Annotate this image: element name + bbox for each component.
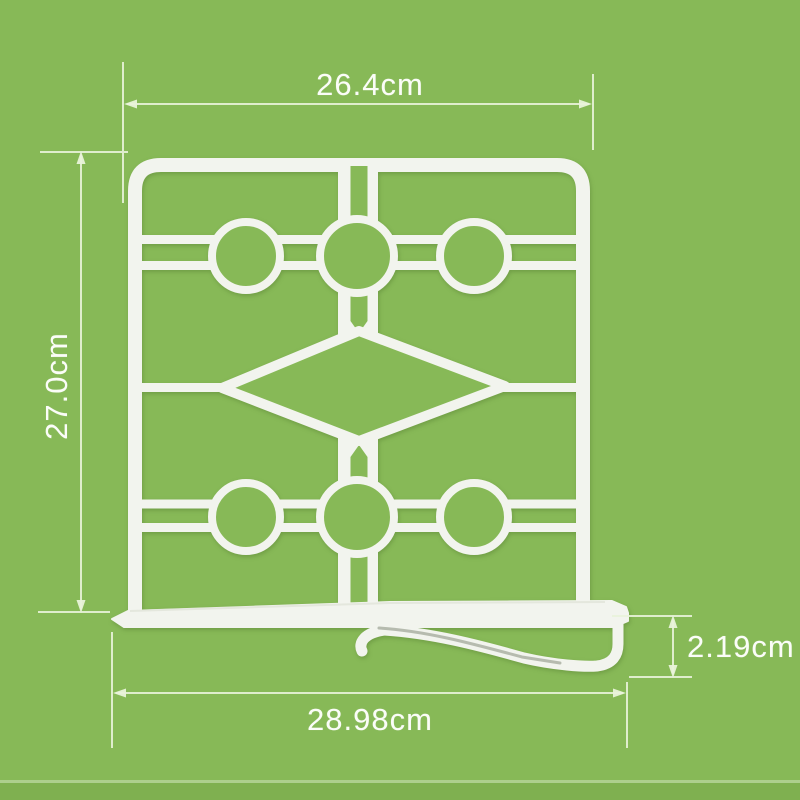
arrow-right-icon — [613, 689, 626, 698]
product-dimension-diagram: 26.4cm 27.0cm 2.19cm 28.98cm — [0, 0, 800, 800]
dimension-label-hook-height: 2.19cm — [687, 629, 795, 665]
dimension-annotations — [0, 0, 800, 800]
arrow-right-icon — [579, 100, 592, 109]
dimension-label-base-width: 28.98cm — [307, 702, 433, 738]
dimension-label-side-height: 27.0cm — [39, 332, 75, 440]
arrow-left-icon — [124, 100, 137, 109]
dimension-hook-height-graphic — [612, 616, 692, 677]
arrow-left-icon — [113, 689, 126, 698]
dimension-label-top-width: 26.4cm — [316, 67, 424, 103]
